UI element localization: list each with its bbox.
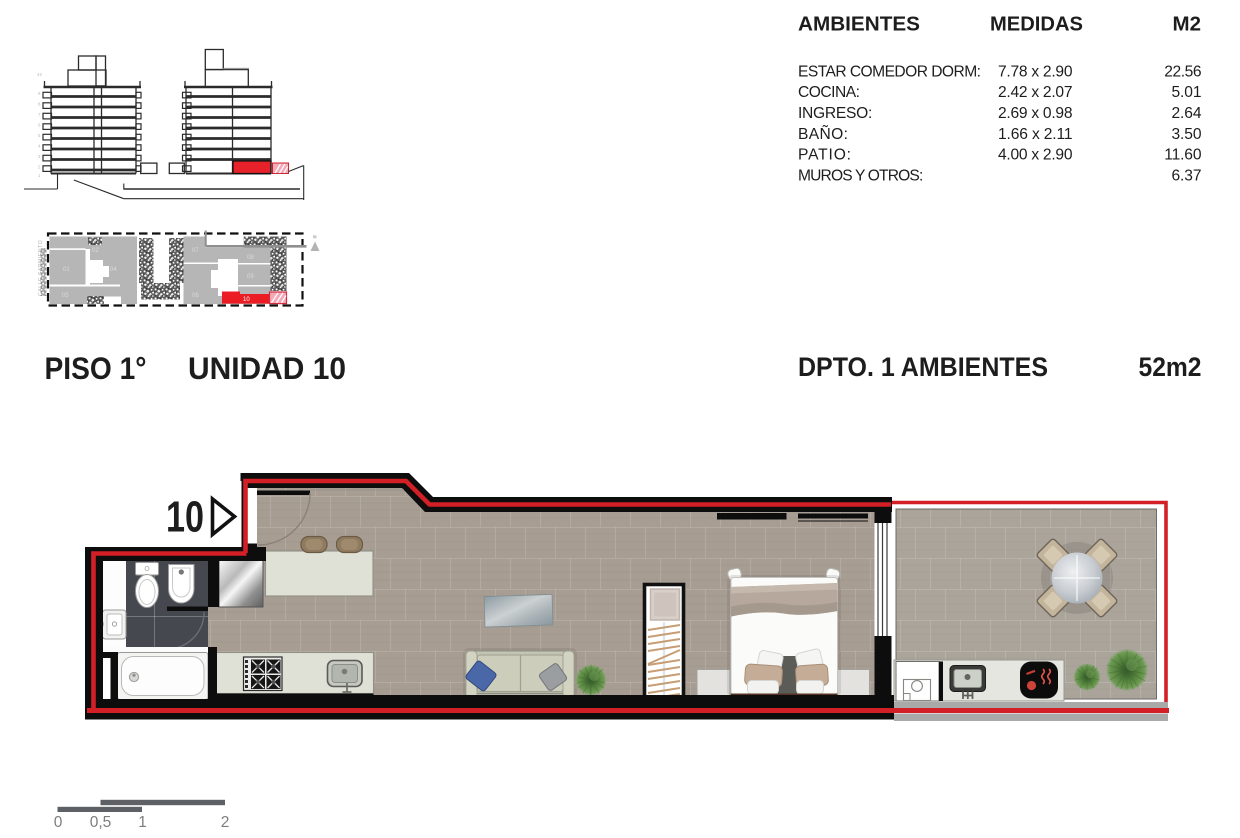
- svg-text:10: 10: [243, 297, 250, 303]
- svg-text:UNIDAD 10: UNIDAD 10: [188, 350, 346, 386]
- svg-text:3.50: 3.50: [1172, 126, 1202, 143]
- svg-text:PISO 1°: PISO 1°: [45, 350, 147, 386]
- svg-text:2: 2: [221, 814, 230, 831]
- svg-text:7.78 x 2.90: 7.78 x 2.90: [998, 63, 1073, 80]
- svg-text:INGRESO:: INGRESO:: [798, 105, 872, 122]
- svg-text:BAÑO:: BAÑO:: [798, 123, 848, 143]
- svg-text:MUROS Y OTROS:: MUROS Y OTROS:: [798, 167, 923, 184]
- svg-text:COCINA:: COCINA:: [798, 84, 860, 101]
- svg-text:ESTAR COMEDOR DORM:: ESTAR COMEDOR DORM:: [798, 63, 981, 80]
- svg-text:2.69 x 0.98: 2.69 x 0.98: [998, 105, 1073, 122]
- svg-text:0,5: 0,5: [90, 814, 112, 831]
- svg-text:22.56: 22.56: [1164, 63, 1201, 80]
- svg-text:7: 7: [38, 112, 41, 117]
- svg-text:42: 42: [37, 72, 42, 77]
- svg-text:4: 4: [38, 144, 41, 149]
- svg-text:11.60: 11.60: [1164, 147, 1202, 164]
- svg-text:M2: M2: [1173, 13, 1201, 36]
- svg-text:5.01: 5.01: [1172, 84, 1202, 101]
- svg-text:9: 9: [38, 91, 41, 96]
- svg-text:2.42 x 2.07: 2.42 x 2.07: [998, 84, 1073, 101]
- svg-text:4.00 x 2.90: 4.00 x 2.90: [998, 147, 1073, 164]
- svg-text:1.66 x 2.11: 1.66 x 2.11: [998, 126, 1073, 143]
- svg-text:0: 0: [54, 814, 63, 831]
- svg-text:08: 08: [247, 255, 254, 261]
- svg-text:5: 5: [38, 133, 41, 138]
- svg-text:6.37: 6.37: [1172, 167, 1202, 184]
- svg-text:01: 01: [63, 267, 70, 273]
- svg-text:09: 09: [247, 274, 254, 280]
- svg-text:04: 04: [110, 267, 117, 273]
- svg-text:06: 06: [192, 293, 199, 299]
- svg-text:2.64: 2.64: [1172, 105, 1202, 122]
- svg-text:MEDIDAS: MEDIDAS: [990, 13, 1083, 36]
- svg-text:AMBIENTES: AMBIENTES: [798, 13, 920, 36]
- svg-text:1: 1: [138, 814, 147, 831]
- svg-text:DPTO. 1 AMBIENTES: DPTO. 1 AMBIENTES: [798, 352, 1048, 382]
- svg-text:05: 05: [62, 293, 69, 299]
- svg-text:10: 10: [166, 493, 204, 542]
- svg-text:2: 2: [38, 165, 41, 170]
- svg-text:3: 3: [38, 154, 41, 159]
- svg-text:8: 8: [38, 102, 41, 107]
- svg-text:6: 6: [38, 123, 41, 128]
- svg-text:1: 1: [38, 173, 41, 178]
- svg-text:PATIO:: PATIO:: [798, 147, 851, 164]
- svg-text:52m2: 52m2: [1139, 352, 1202, 382]
- svg-text:07: 07: [192, 248, 199, 254]
- svg-text:02: 02: [92, 248, 99, 254]
